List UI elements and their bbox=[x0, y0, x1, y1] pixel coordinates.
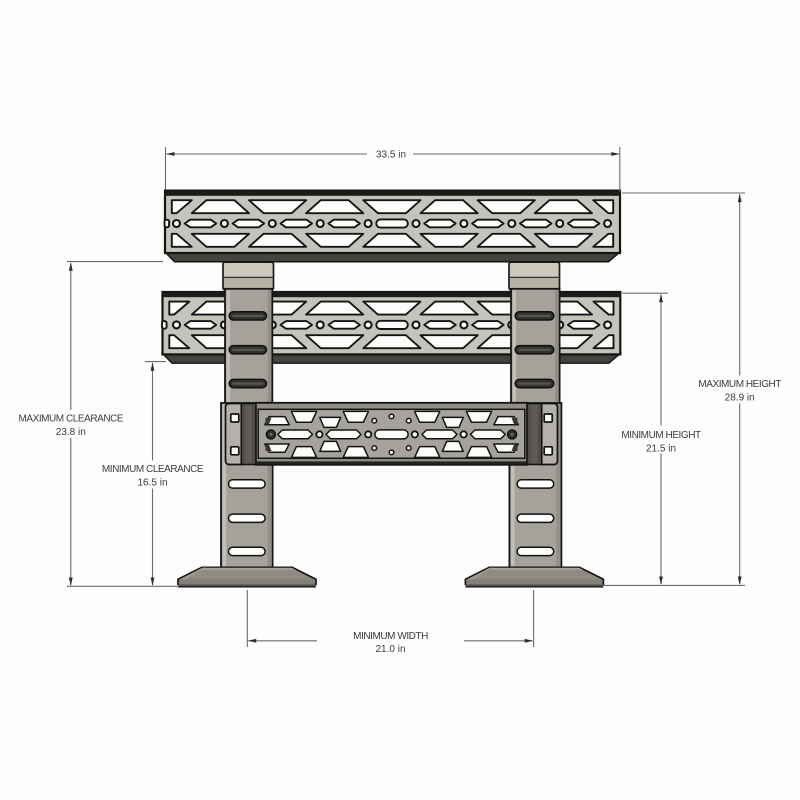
svg-text:MINIMUM CLEARANCE: MINIMUM CLEARANCE bbox=[102, 464, 204, 475]
svg-text:23.8 in: 23.8 in bbox=[56, 427, 86, 438]
svg-text:MAXIMUM HEIGHT: MAXIMUM HEIGHT bbox=[698, 379, 781, 390]
svg-text:21.0 in: 21.0 in bbox=[375, 644, 405, 655]
svg-text:28.9 in: 28.9 in bbox=[725, 393, 755, 404]
svg-text:MAXIMUM CLEARANCE: MAXIMUM CLEARANCE bbox=[19, 414, 124, 425]
svg-text:MINIMUM WIDTH: MINIMUM WIDTH bbox=[353, 631, 428, 642]
svg-text:21.5 in: 21.5 in bbox=[646, 443, 676, 454]
svg-text:MINIMUM HEIGHT: MINIMUM HEIGHT bbox=[621, 430, 701, 441]
svg-text:16.5 in: 16.5 in bbox=[137, 477, 167, 488]
svg-text:33.5 in: 33.5 in bbox=[376, 149, 406, 160]
